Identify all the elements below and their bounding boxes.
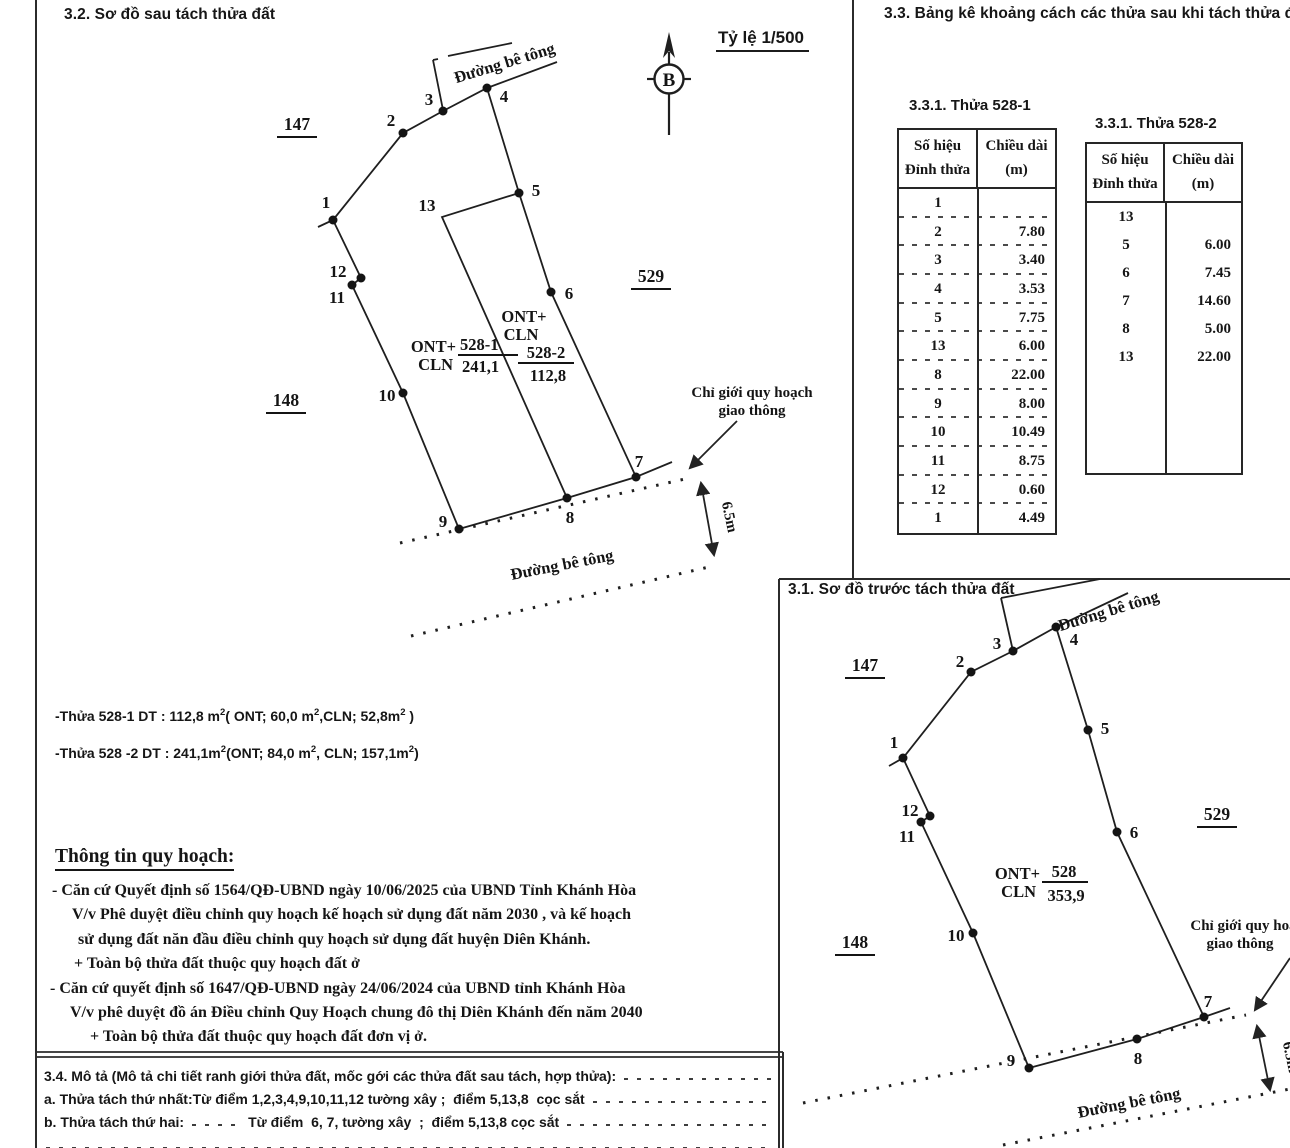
svg-text:528: 528	[1052, 862, 1077, 881]
svg-text:112,8: 112,8	[530, 366, 566, 385]
svg-text:4: 4	[1070, 630, 1079, 649]
svg-text:8: 8	[566, 508, 575, 527]
table-row: 1322.00	[1087, 343, 1241, 371]
before-vertex-labels: 1 2 3 4 5 6 7 8 9 10 11 12	[890, 630, 1213, 1070]
planning-info-section: Thông tin quy hoạch: - Căn cứ Quyết định…	[50, 846, 770, 1050]
before-plot-boundary	[889, 579, 1230, 1068]
table-row: 33.40	[899, 246, 1055, 275]
svg-text:11: 11	[329, 288, 345, 307]
svg-text:3: 3	[993, 634, 1002, 653]
svg-text:Chỉ giới quy hoạch: Chỉ giới quy hoạch	[1190, 918, 1290, 934]
north-letter: B	[663, 70, 676, 91]
section-3-3-title: 3.3. Bảng kê khoảng cách các thửa sau kh…	[884, 5, 1290, 23]
before-road-top-label: Đường bê tông	[1056, 586, 1162, 635]
svg-text:528-2: 528-2	[527, 343, 566, 362]
dotted-filler	[567, 1124, 774, 1127]
table-row: 822.00	[899, 361, 1055, 390]
dotted-filler	[593, 1101, 774, 1104]
svg-text:2: 2	[956, 652, 965, 671]
planning-heading: Thông tin quy hoạch:	[55, 846, 234, 871]
planning-line: + Toàn bộ thửa đất thuộc quy hoạch đất ở	[74, 952, 770, 976]
table-row: 118.75	[899, 447, 1055, 476]
svg-text:5: 5	[532, 181, 541, 200]
dotted-filler	[192, 1124, 244, 1127]
svg-text:147: 147	[284, 114, 311, 134]
svg-text:10: 10	[948, 926, 965, 945]
table-row: 57.75	[899, 304, 1055, 333]
svg-text:8: 8	[1134, 1049, 1143, 1068]
after-width-dimension-arrow	[701, 483, 714, 555]
table-528-1-title: 3.3.1. Thửa 528-1	[909, 97, 1031, 114]
after-boundary-arrow	[690, 421, 737, 468]
table-528-2: Số hiệuĐỉnh thửa Chiều dài(m) 13 56.00 6…	[1085, 142, 1243, 475]
after-plot-boundary	[318, 43, 672, 529]
svg-text:CLN: CLN	[1001, 882, 1036, 901]
before-boundary-arrow	[1255, 958, 1290, 1010]
svg-text:4: 4	[500, 87, 509, 106]
description-line	[44, 1130, 778, 1148]
table-row: 136.00	[899, 332, 1055, 361]
table-row: 714.60	[1087, 287, 1241, 315]
table-row: 85.00	[1087, 315, 1241, 343]
svg-text:5: 5	[1101, 719, 1110, 738]
svg-text:9: 9	[439, 512, 448, 531]
svg-text:7: 7	[1204, 992, 1213, 1011]
after-vertex-dots	[329, 84, 641, 534]
before-width-dimension-label: 6.5m	[1279, 1040, 1290, 1074]
description-line: a. Thửa tách thứ nhất:Từ điểm 1,2,3,4,9,…	[44, 1084, 778, 1107]
table-528-2-title: 3.3.1. Thửa 528-2	[1095, 115, 1217, 132]
before-plot-528-label: ONT+ CLN 528 353,9	[995, 862, 1088, 905]
table-header: Số hiệuĐỉnh thửa Chiều dài(m)	[1087, 144, 1241, 203]
section-3-1-title: 3.1. Sơ đồ trước tách thửa đất	[788, 581, 1015, 599]
table-row: 1010.49	[899, 418, 1055, 447]
svg-text:3: 3	[425, 90, 434, 109]
before-vertex-dots	[899, 623, 1209, 1073]
after-planning-boundary-label: Chỉ giới quy hoạch giao thông	[691, 385, 813, 419]
svg-text:147: 147	[852, 655, 879, 675]
svg-text:ONT+: ONT+	[995, 864, 1040, 883]
scanned-cadastral-document: 1 2 3 4 5 6 7 8 9 10 11 12 13 147 529 14…	[0, 0, 1290, 1148]
section-3-2-title: 3.2. Sơ đồ sau tách thửa đất	[64, 6, 275, 24]
dotted-filler	[624, 1078, 774, 1081]
svg-text:148: 148	[273, 390, 300, 410]
after-plot-528-1-label: ONT+ CLN 528-1 241,1	[411, 335, 518, 376]
table-header: Số hiệuĐỉnh thửa Chiều dài(m)	[899, 130, 1055, 189]
svg-text:Chỉ giới quy hoạch: Chỉ giới quy hoạch	[691, 385, 813, 401]
table-empty-area	[1087, 371, 1241, 473]
svg-text:7: 7	[635, 452, 644, 471]
table-row: 27.80	[899, 218, 1055, 247]
planning-line: - Căn cứ Quyết định số 1564/QĐ-UBND ngày…	[52, 879, 770, 903]
svg-text:giao thông: giao thông	[1206, 936, 1274, 952]
svg-text:529: 529	[638, 266, 665, 286]
svg-text:12: 12	[902, 801, 919, 820]
table-row: 43.53	[899, 275, 1055, 304]
svg-text:ONT+: ONT+	[411, 337, 456, 356]
table-528-1: Số hiệuĐỉnh thửa Chiều dài(m) 1 27.80 33…	[897, 128, 1057, 535]
svg-text:9: 9	[1007, 1051, 1016, 1070]
table-row: 1	[899, 189, 1055, 218]
after-road-top-label: Đường bê tông	[452, 38, 558, 87]
before-planning-boundary-label: Chỉ giới quy hoạch giao thông	[1190, 918, 1290, 952]
before-width-dimension-arrow	[1257, 1026, 1270, 1090]
planning-line: + Toàn bộ thửa đất thuộc quy hoạch đất đ…	[90, 1025, 770, 1049]
planning-line: sử dụng đất năn đầu điều chỉnh quy hoạch…	[78, 928, 770, 952]
before-road-dotted-lines	[803, 1015, 1290, 1145]
after-road-bottom-label: Đường bê tông	[509, 545, 616, 584]
svg-text:529: 529	[1204, 804, 1231, 824]
svg-text:1: 1	[890, 733, 899, 752]
svg-text:6: 6	[1130, 823, 1139, 842]
table-row: 13	[1087, 203, 1241, 231]
description-line: b. Thửa tách thứ hai:Từ điểm 6, 7, tường…	[44, 1107, 778, 1130]
table-row: 98.00	[899, 390, 1055, 419]
svg-text:11: 11	[899, 827, 915, 846]
planning-line: - Căn cứ quyết định số 1647/QĐ-UBND ngày…	[50, 977, 770, 1001]
scale-label: Tỷ lệ 1/500	[716, 28, 809, 52]
svg-text:CLN: CLN	[504, 325, 539, 344]
svg-text:ONT+: ONT+	[501, 307, 546, 326]
after-width-dimension-label: 6.5m	[718, 500, 740, 534]
svg-text:148: 148	[842, 932, 869, 952]
svg-text:giao thông: giao thông	[718, 403, 786, 419]
table-row: 67.45	[1087, 259, 1241, 287]
svg-text:12: 12	[330, 262, 347, 281]
description-line: 3.4. Mô tả (Mô tả chi tiết ranh giới thử…	[44, 1061, 778, 1084]
description-section-3-4: 3.4. Mô tả (Mô tả chi tiết ranh giới thử…	[44, 1061, 778, 1148]
planning-line: V/v Phê duyệt điều chỉnh quy hoạch kế ho…	[72, 903, 770, 927]
area-note-528-2: -Thửa 528 -2 DT : 241,1m2(ONT; 84,0 m2, …	[55, 744, 419, 761]
svg-text:353,9: 353,9	[1047, 886, 1084, 905]
svg-text:13: 13	[419, 196, 436, 215]
table-row: 14.49	[899, 504, 1055, 533]
svg-text:528-1: 528-1	[460, 335, 499, 354]
area-note-528-1: -Thửa 528-1 DT : 112,8 m2( ONT; 60,0 m2,…	[55, 707, 414, 724]
svg-text:10: 10	[379, 386, 396, 405]
svg-text:6: 6	[565, 284, 574, 303]
svg-text:1: 1	[322, 193, 331, 212]
planning-line: V/v phê duyệt đồ án Điều chỉnh Quy Hoạch…	[70, 1001, 770, 1025]
table-row: 120.60	[899, 476, 1055, 505]
before-neighbor-parcels: 147 529 148	[835, 655, 1237, 955]
svg-text:241,1: 241,1	[462, 357, 499, 376]
svg-text:CLN: CLN	[418, 355, 453, 374]
before-road-bottom-label: Đường bê tông	[1076, 1083, 1183, 1122]
north-arrow-icon: B	[647, 32, 691, 135]
svg-text:2: 2	[387, 111, 396, 130]
table-row: 56.00	[1087, 231, 1241, 259]
